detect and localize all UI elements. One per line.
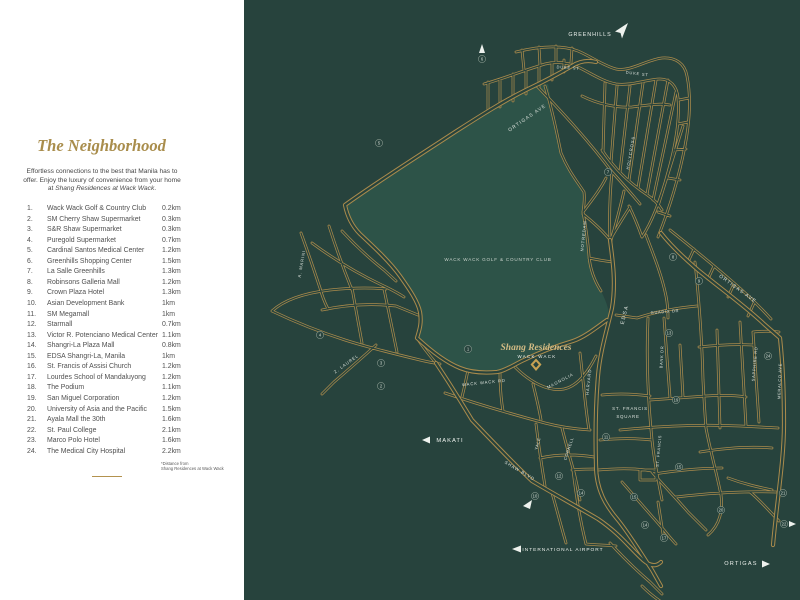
svg-text:SQUARE: SQUARE	[616, 414, 639, 419]
svg-text:EDSA: EDSA	[620, 304, 631, 325]
svg-text:20: 20	[719, 508, 724, 513]
svg-text:13: 13	[667, 331, 672, 336]
svg-text:WACK WACK: WACK WACK	[518, 354, 557, 359]
svg-text:WACK WACK GOLF & COUNTRY CLUB: WACK WACK GOLF & COUNTRY CLUB	[444, 257, 551, 262]
svg-text:14: 14	[579, 491, 584, 496]
svg-text:DUKE ST: DUKE ST	[556, 64, 579, 71]
svg-text:12: 12	[557, 474, 562, 479]
svg-text:GUADIX DR: GUADIX DR	[650, 308, 679, 315]
svg-text:MAKATI: MAKATI	[436, 438, 463, 444]
svg-text:10: 10	[533, 494, 538, 499]
svg-text:ST. FRANCIS: ST. FRANCIS	[612, 406, 648, 411]
svg-text:22: 22	[782, 522, 787, 527]
svg-text:24: 24	[766, 354, 771, 359]
svg-text:A. MARINI: A. MARINI	[297, 250, 307, 278]
svg-text:14: 14	[643, 523, 648, 528]
svg-text:DUKE ST: DUKE ST	[625, 70, 648, 78]
svg-text:BANK DR: BANK DR	[658, 345, 664, 368]
svg-text:GREENHILLS: GREENHILLS	[568, 32, 611, 38]
svg-text:21: 21	[781, 491, 786, 496]
svg-text:19: 19	[674, 398, 679, 403]
svg-text:11: 11	[604, 435, 609, 440]
svg-text:Shang Residences: Shang Residences	[501, 343, 572, 353]
svg-text:ST. FRANCIS: ST. FRANCIS	[655, 435, 663, 467]
svg-text:SHAW BLVD: SHAW BLVD	[504, 460, 536, 482]
svg-text:15: 15	[632, 495, 637, 500]
svg-text:ORTIGAS: ORTIGAS	[724, 561, 757, 567]
svg-text:INTERNATIONAL AIRPORT: INTERNATIONAL AIRPORT	[522, 547, 603, 553]
svg-text:15: 15	[677, 465, 682, 470]
svg-text:17: 17	[662, 536, 667, 541]
